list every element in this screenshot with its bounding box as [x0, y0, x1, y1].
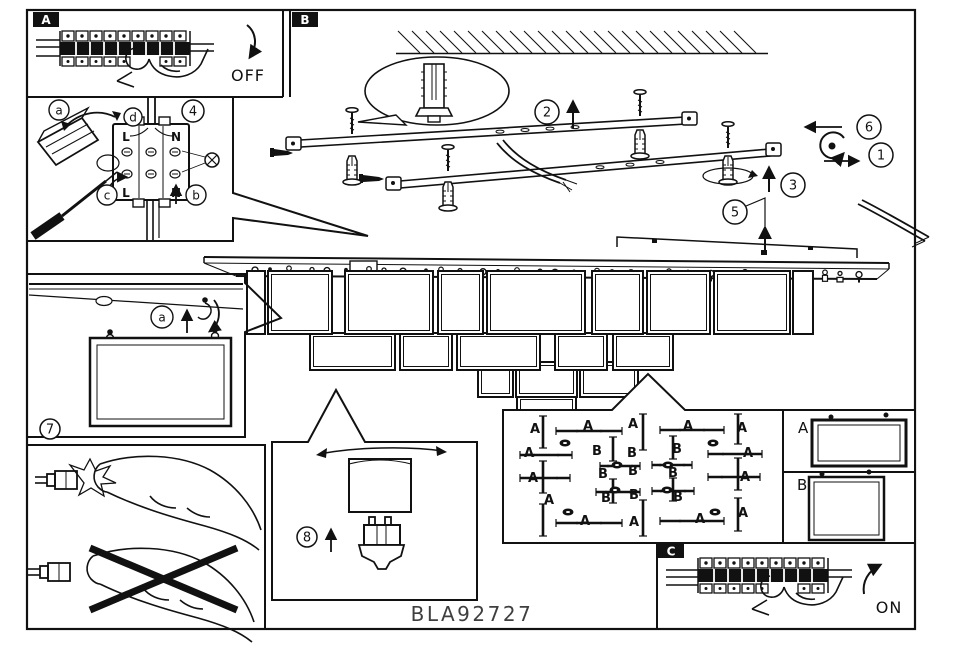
square-shade — [349, 459, 411, 512]
diagram-canvas: A OFF B — [0, 0, 960, 647]
line-art — [576, 430, 579, 433]
glass-shade — [714, 271, 790, 334]
socket — [856, 272, 862, 278]
line-art — [557, 454, 560, 457]
panel-sample-a: A — [798, 413, 906, 467]
line-art — [683, 464, 686, 467]
panel-a-power-off: A OFF — [33, 12, 265, 87]
line-art — [711, 442, 715, 444]
glass-shade — [268, 271, 332, 334]
mounting-screw — [442, 145, 454, 171]
line-art — [703, 429, 706, 432]
tab-hole — [687, 117, 691, 121]
ref-c: c — [104, 189, 111, 203]
plan-label-a: A — [580, 514, 590, 529]
line-art — [615, 464, 619, 466]
line-art — [659, 464, 662, 467]
canopy-lip — [204, 263, 889, 269]
line-art — [722, 453, 725, 456]
glass-shade — [345, 271, 433, 334]
line-art — [713, 511, 717, 513]
wall-plug — [631, 130, 649, 159]
ceiling-hatch-line — [412, 31, 434, 53]
ceiling-hatch-line — [496, 31, 518, 53]
correct-handling — [35, 456, 261, 550]
ceiling-hatch-line — [678, 31, 700, 53]
ceiling-hatch-line — [538, 31, 560, 53]
socket — [823, 270, 828, 275]
line-art — [556, 477, 559, 480]
wall-plug — [343, 156, 361, 185]
plan-label-a: A — [530, 422, 540, 437]
tab-hole — [771, 147, 775, 151]
glass-shade — [400, 333, 452, 370]
terminal-l-bottom: L — [122, 186, 130, 200]
line-art — [600, 522, 603, 525]
panel-bulb-handling — [28, 456, 261, 642]
ceiling-hatch-line — [636, 31, 658, 53]
panel-c-power-on: C ON — [658, 544, 902, 617]
ceiling-hatch-line — [552, 31, 574, 53]
plan-label-a: A — [737, 421, 747, 436]
rotate-on-arrow — [864, 565, 880, 594]
panel-hanging: a 7 — [29, 284, 243, 439]
ceiling-hatch-line — [622, 31, 644, 53]
plan-label-a: A — [524, 446, 534, 461]
glass-shade — [793, 271, 813, 334]
canopy-bolt — [761, 250, 767, 255]
ceiling-hatch-line — [692, 31, 714, 53]
canopy-bolt — [808, 246, 813, 250]
mounting-screw — [722, 122, 734, 148]
line-art — [679, 520, 682, 523]
plan-label-a: A — [683, 419, 693, 434]
terminal-l-top: L — [122, 130, 130, 144]
ceiling-hatch-line — [650, 31, 672, 53]
canopy-cable — [858, 200, 929, 247]
socket — [287, 266, 292, 271]
tab-hole — [291, 142, 295, 146]
step-3: 3 — [789, 179, 797, 194]
hook-rotate-arrow — [210, 300, 219, 331]
rail-hook — [202, 297, 208, 303]
glass-panel — [90, 338, 231, 426]
plan-label-a: A — [695, 512, 705, 527]
ceiling-hatch-line — [482, 31, 504, 53]
terminal-strip — [60, 31, 190, 66]
panel-hook — [884, 413, 889, 418]
plan-label-a: A — [544, 493, 554, 508]
ceiling-hatch-line — [608, 31, 630, 53]
mounting-screw — [634, 90, 646, 116]
ceiling-hatch-line — [454, 31, 476, 53]
ceiling-hatch-line — [524, 31, 546, 53]
plan-label-a: A — [629, 515, 639, 530]
line-art — [566, 511, 570, 513]
terminal-lug — [133, 199, 144, 207]
ceiling-hatch-line — [468, 31, 490, 53]
canopy-join — [877, 269, 889, 279]
plan-label-b: B — [598, 467, 608, 482]
rail-hole — [96, 297, 112, 306]
plan-label-b: B — [668, 466, 678, 481]
ceiling-hatch-line — [580, 31, 602, 53]
terminal-n-top: N — [171, 130, 181, 144]
ref-a: a — [55, 104, 62, 118]
ceiling-hatch-line — [426, 31, 448, 53]
rotation-arrowhead — [748, 170, 758, 178]
panel-hook — [867, 470, 872, 475]
mounting-screw — [346, 108, 358, 134]
glass-shade — [592, 271, 643, 334]
socket — [838, 271, 842, 275]
plan-label-a: A — [743, 446, 753, 461]
step-5-leader — [746, 198, 765, 226]
canopy-top-edge — [204, 257, 889, 263]
rotate-off-arrow — [247, 25, 255, 57]
glass-shade — [613, 333, 673, 370]
socket-body — [837, 277, 843, 282]
junction-box — [350, 261, 377, 271]
ceiling-hatch-line — [664, 31, 686, 53]
line-art — [563, 442, 567, 444]
ceiling-hatch-line — [720, 31, 742, 53]
panel-b-mounting: B — [270, 12, 929, 255]
glass-panel-type-a — [812, 420, 906, 466]
line-art — [684, 490, 687, 493]
lamp-assembly — [204, 237, 889, 424]
plan-label-a: A — [628, 417, 638, 432]
wall-plug — [439, 182, 457, 211]
step-7: 7 — [46, 423, 54, 438]
panel-bulb-handling-border — [27, 445, 265, 629]
plan-label-a: A — [528, 471, 538, 486]
panel-c-label: C — [667, 545, 676, 559]
socket-body — [823, 275, 828, 281]
step-5: 5 — [731, 206, 739, 221]
on-text: ON — [876, 598, 903, 617]
plan-label-a: A — [738, 506, 748, 521]
line-art — [665, 489, 669, 491]
canopy-bolt — [652, 239, 657, 243]
step-4: 4 — [189, 105, 197, 120]
terminal-lug — [159, 199, 170, 207]
terminal-strip — [698, 558, 828, 593]
panel-b-label: B — [300, 13, 309, 27]
rotate-center-screw — [829, 143, 836, 150]
line-art — [576, 522, 579, 525]
step-8: 8 — [303, 531, 311, 546]
ceiling-hatch-line — [398, 31, 420, 53]
step-6: 6 — [865, 121, 873, 136]
panel-hook — [820, 472, 825, 477]
tab-hole — [391, 181, 395, 185]
ceiling-hatch-line — [594, 31, 616, 53]
off-text: OFF — [231, 66, 265, 85]
step-1: 1 — [877, 149, 885, 164]
glass-shade — [647, 271, 710, 334]
plan-label-b: B — [629, 488, 639, 503]
ceiling-hatch-line — [566, 31, 588, 53]
panel-a-label: A — [41, 13, 51, 27]
glass-panel-type-b — [809, 477, 884, 540]
glass-shade — [310, 333, 395, 370]
glass-shade — [487, 271, 585, 334]
rail-hook-curve — [198, 303, 211, 319]
ceiling-hatch-line — [510, 31, 532, 53]
plan-label-b: B — [628, 464, 638, 479]
plan-label-b: B — [627, 446, 637, 461]
ceiling-hatch-line — [706, 31, 728, 53]
plan-label-a: A — [740, 470, 750, 485]
line-art — [600, 430, 603, 433]
terminal-lug — [159, 117, 170, 125]
ref-a: a — [158, 311, 165, 325]
step-2: 2 — [543, 106, 551, 121]
plan-label-b: B — [601, 491, 611, 506]
sample-a-label: A — [798, 419, 809, 437]
panel-sample-b: B — [797, 470, 884, 541]
ceiling-hatch-line — [734, 31, 756, 53]
connector-box — [38, 108, 98, 165]
ref-b: b — [192, 189, 200, 203]
panel-wiring: 4 L N L N — [33, 98, 219, 240]
line-art — [679, 429, 682, 432]
bracket-screw — [359, 174, 384, 183]
line-art — [613, 489, 617, 491]
product-code: BLA92727 — [411, 602, 534, 626]
line-art — [721, 476, 724, 479]
panel-hook — [829, 415, 834, 420]
sample-b-label: B — [797, 476, 807, 494]
instruction-sheet: A OFF B — [0, 0, 960, 647]
plan-label-b: B — [592, 444, 602, 459]
ref-d: d — [129, 111, 137, 125]
plan-label-a: A — [583, 419, 593, 434]
glass-shade — [555, 333, 607, 370]
ceiling-hatching — [398, 31, 756, 53]
plan-label-b: B — [672, 442, 682, 457]
glass-shade — [457, 333, 540, 370]
glass-shade — [438, 271, 483, 334]
plan-label-b: B — [673, 490, 683, 505]
ceiling-hatch-line — [440, 31, 462, 53]
